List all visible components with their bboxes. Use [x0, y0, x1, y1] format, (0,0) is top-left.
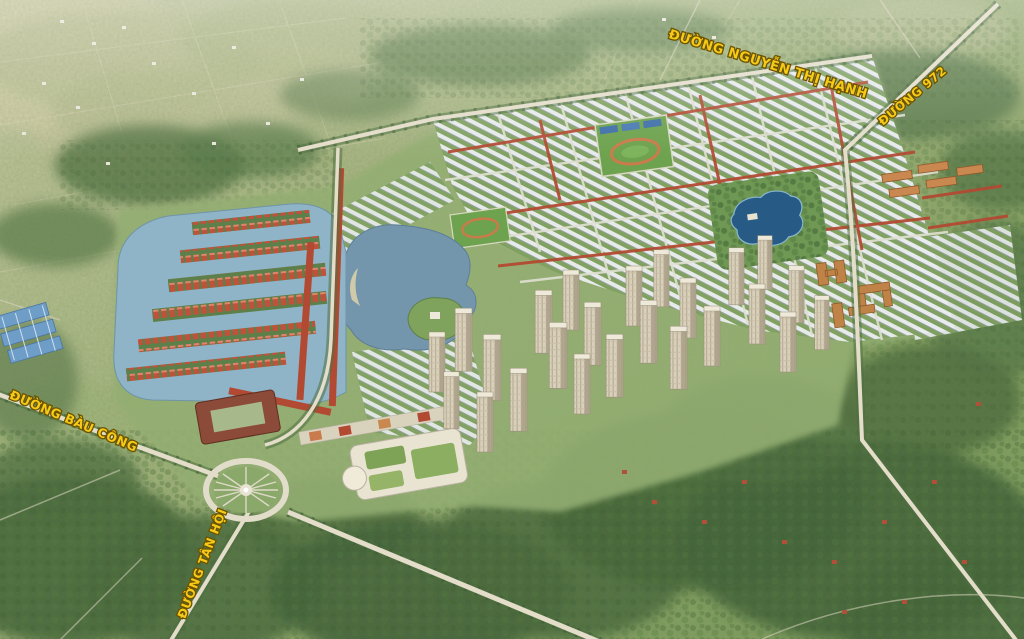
tower [729, 248, 744, 305]
tower [574, 354, 590, 414]
tower [563, 270, 579, 330]
tower [444, 372, 459, 429]
tower [549, 322, 567, 388]
tower [758, 236, 772, 290]
scene-canvas: ĐƯỜNG NGUYỄN THỊ HẠNH ĐƯỜNG 972 ĐƯỜNG BÀ… [0, 0, 1024, 639]
tower [477, 392, 493, 452]
roundabout-monument [244, 488, 249, 493]
tower [780, 312, 796, 372]
tower [704, 306, 720, 366]
aerial-render: ĐƯỜNG NGUYỄN THỊ HẠNH ĐƯỜNG 972 ĐƯỜNG BÀ… [0, 0, 1024, 639]
tower [640, 300, 657, 363]
tower [670, 326, 687, 389]
townhouse-rows-east [905, 225, 1022, 340]
tower [429, 332, 445, 392]
tower [606, 334, 623, 397]
tower [455, 308, 472, 371]
tower [749, 284, 765, 344]
island-pavilion [430, 312, 440, 319]
sports-field [450, 207, 510, 248]
tower [654, 250, 669, 307]
atmospheric-haze [0, 0, 1024, 160]
tower [815, 296, 829, 350]
tower [483, 334, 501, 400]
tower [510, 368, 527, 431]
tower [626, 266, 642, 326]
